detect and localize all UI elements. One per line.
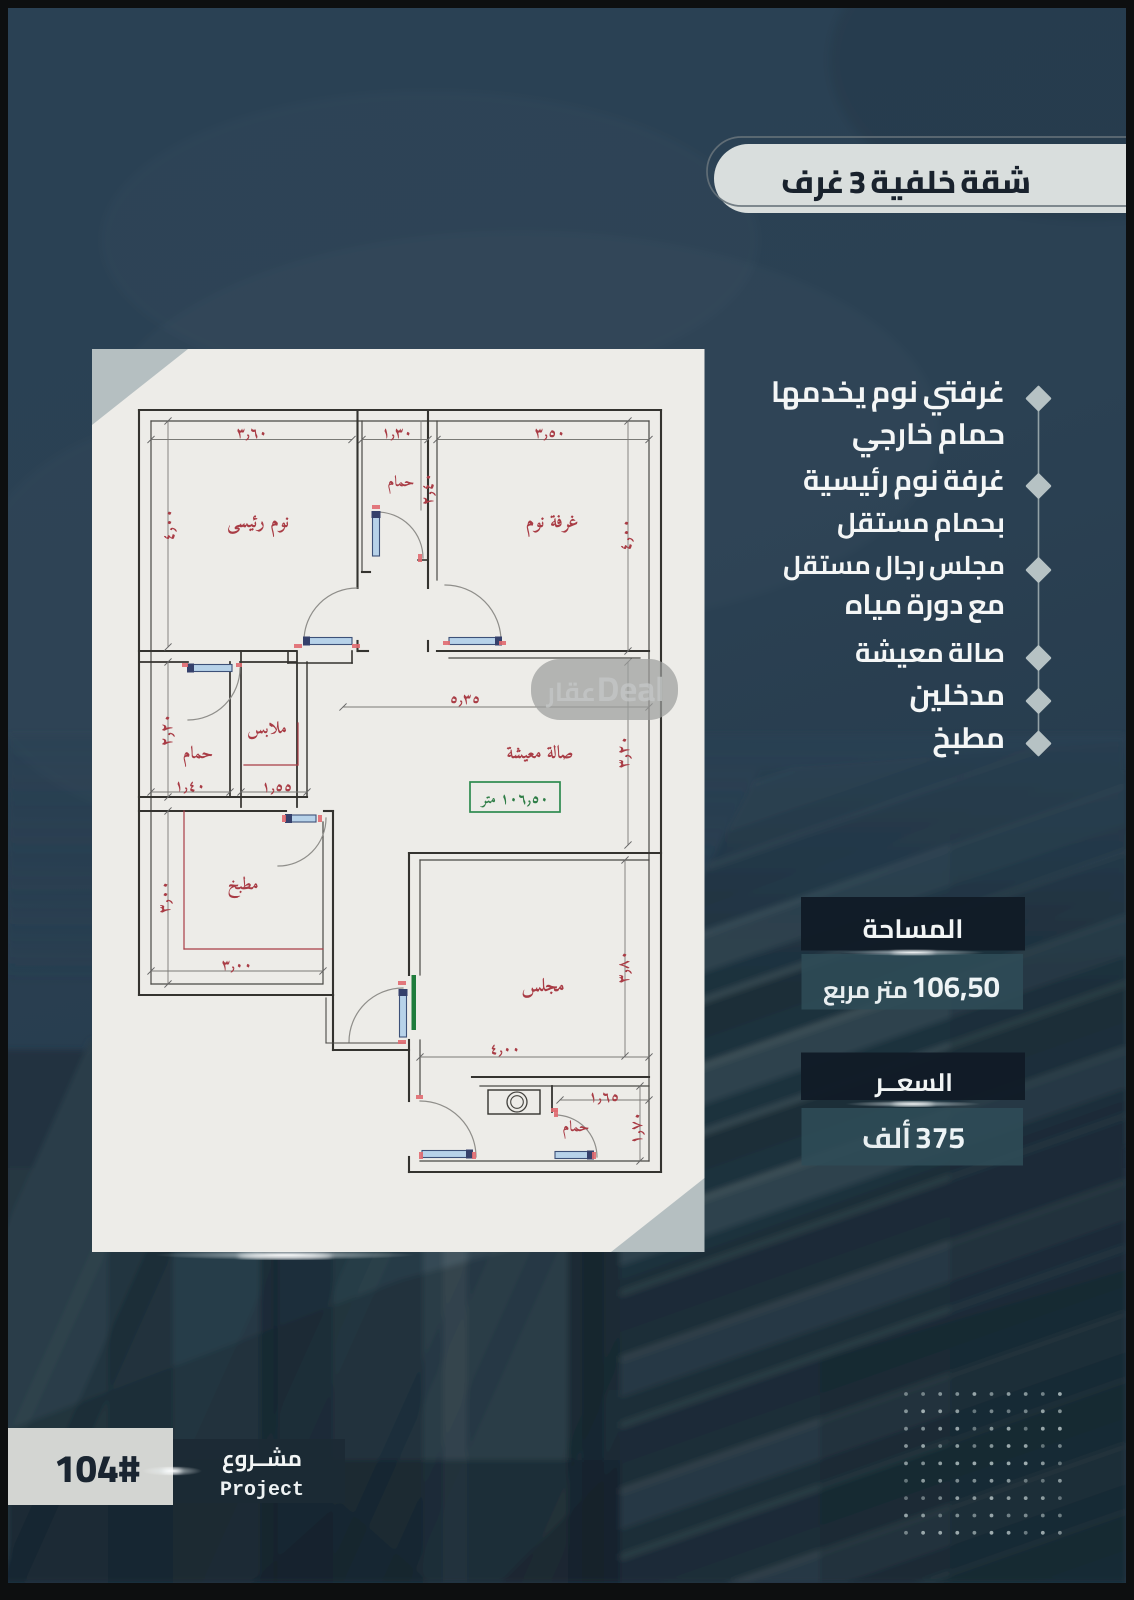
svg-text:Project: Project bbox=[220, 1479, 304, 1502]
